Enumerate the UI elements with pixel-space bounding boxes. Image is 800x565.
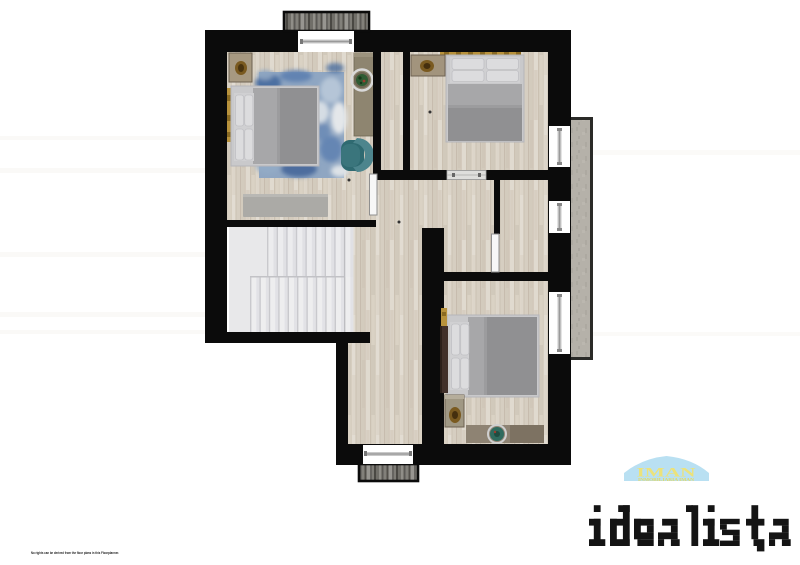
svg-text:No rights can be derived from: No rights can be derived from the floor …	[31, 551, 119, 555]
svg-text:INMOBILIARIA IMAN: INMOBILIARIA IMAN	[638, 478, 695, 482]
